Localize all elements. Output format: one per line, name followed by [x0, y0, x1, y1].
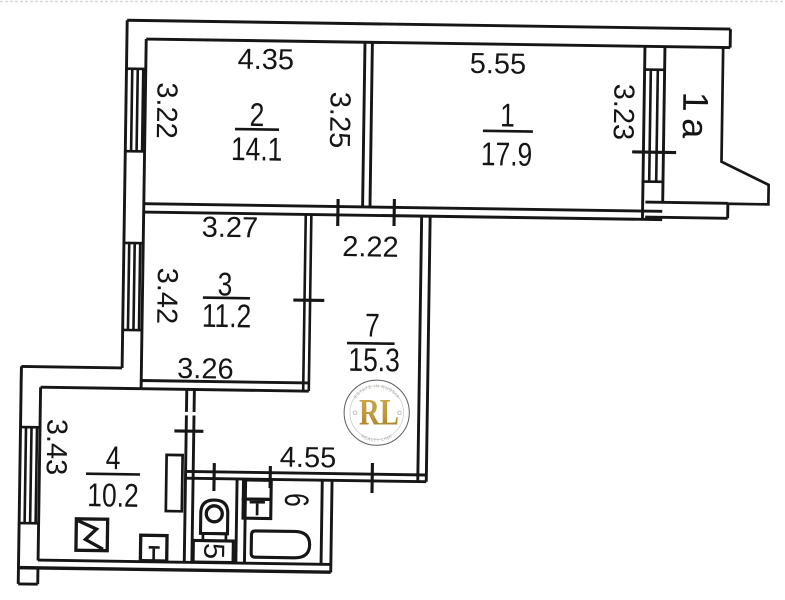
- svg-text:17.9: 17.9: [481, 136, 533, 173]
- svg-text:3.26: 3.26: [177, 353, 234, 386]
- svg-text:3.23: 3.23: [607, 83, 640, 140]
- svg-text:3.43: 3.43: [40, 419, 73, 476]
- svg-text:3.42: 3.42: [150, 268, 183, 325]
- svg-text:4.35: 4.35: [237, 44, 294, 77]
- svg-text:11.2: 11.2: [202, 298, 252, 335]
- svg-text:2.22: 2.22: [342, 231, 399, 264]
- svg-text:1: 1: [500, 98, 515, 135]
- svg-text:4.55: 4.55: [280, 442, 337, 475]
- svg-text:5.55: 5.55: [470, 48, 527, 81]
- svg-text:15.3: 15.3: [348, 342, 400, 379]
- svg-text:3.27: 3.27: [202, 212, 259, 245]
- svg-text:14.1: 14.1: [231, 131, 283, 168]
- svg-text:10.2: 10.2: [87, 477, 139, 514]
- svg-text:5: 5: [197, 543, 229, 560]
- svg-text:1a: 1a: [675, 91, 717, 145]
- svg-text:3.22: 3.22: [150, 82, 183, 139]
- svg-text:4: 4: [105, 440, 120, 477]
- svg-text:RL: RL: [359, 392, 399, 433]
- svg-text:7: 7: [365, 308, 380, 345]
- svg-text:6: 6: [277, 493, 315, 507]
- svg-text:3.25: 3.25: [323, 92, 356, 149]
